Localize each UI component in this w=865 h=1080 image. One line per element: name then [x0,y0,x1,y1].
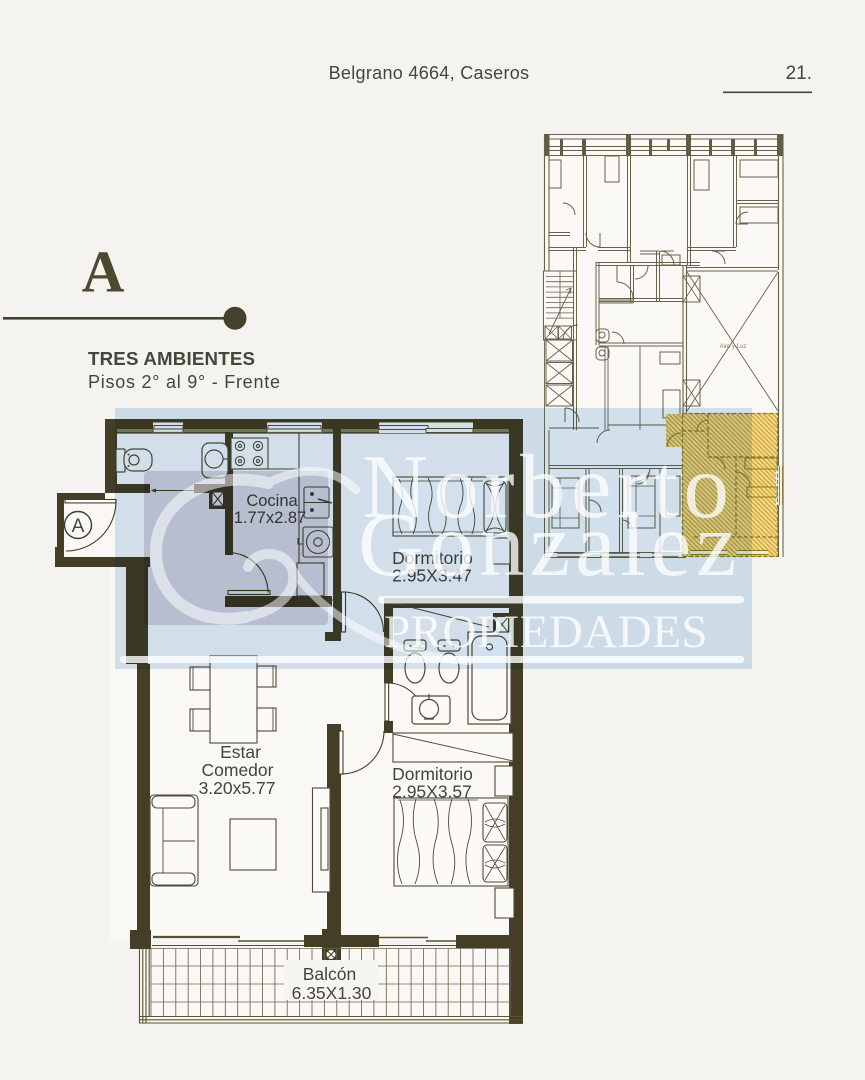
svg-text:21.: 21. [786,63,812,84]
svg-text:Aire y Luz: Aire y Luz [720,344,747,350]
svg-text:Belgrano 4664, Caseros: Belgrano 4664, Caseros [329,63,530,83]
svg-text:6.35X1.30: 6.35X1.30 [292,983,372,1003]
svg-text:A: A [82,239,125,305]
svg-text:Balcón: Balcón [303,964,357,984]
svg-text:Pisos 2° al 9° - Frente: Pisos 2° al 9° - Frente [88,372,281,392]
svg-text:A: A [72,516,85,537]
svg-text:TRES AMBIENTES: TRES AMBIENTES [88,348,255,369]
svg-text:Comedor: Comedor [202,760,274,780]
svg-text:2.95X3.57: 2.95X3.57 [392,782,472,802]
svg-text:PROPIEDADES: PROPIEDADES [384,606,708,658]
svg-text:Gonzalez: Gonzalez [358,494,742,595]
svg-text:3.20x5.77: 3.20x5.77 [199,778,276,798]
svg-text:Estar: Estar [220,742,261,762]
